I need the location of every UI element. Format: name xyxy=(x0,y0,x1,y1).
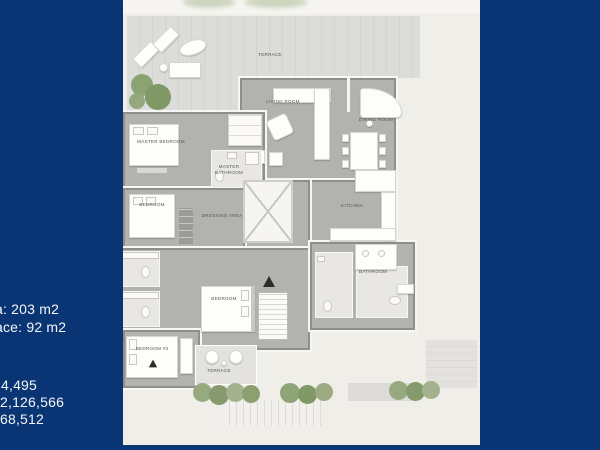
chair-icon xyxy=(342,160,349,168)
sink-counter-icon xyxy=(123,292,159,299)
bed-bench-icon xyxy=(137,168,167,173)
floor-plan-image: TERRACE LIVING ROOM DINING ROOM KITCHEN … xyxy=(123,0,480,445)
sink-counter-icon xyxy=(123,252,159,259)
shower-icon xyxy=(245,152,259,165)
terrace-text: ace: 92 m2 xyxy=(0,319,66,335)
wardrobe-icon xyxy=(180,338,193,374)
pillow-icon xyxy=(241,306,249,317)
sofa-icon xyxy=(314,88,330,160)
kitchen-counter xyxy=(330,228,396,241)
label-bathroom-right: BATHROOM xyxy=(359,269,387,275)
label-dining-room: DINING ROOM xyxy=(359,117,393,123)
chair-icon xyxy=(379,134,386,142)
label-bedroom-lower: BEDROOM #3 xyxy=(136,346,169,352)
label-master-bedroom: MASTER BEDROOM xyxy=(137,139,185,145)
sink-icon xyxy=(362,250,369,257)
bush-icon xyxy=(422,381,440,399)
chair-icon xyxy=(379,160,386,168)
staircase xyxy=(258,292,288,340)
side-table-icon xyxy=(159,63,168,72)
label-terrace-main: TERRACE xyxy=(258,52,282,58)
pillow-icon xyxy=(241,290,249,301)
patio-chair-icon xyxy=(205,350,219,364)
label-kitchen: KITCHEN xyxy=(341,203,363,209)
kitchen-counter xyxy=(355,170,396,192)
toilet-icon xyxy=(389,296,401,305)
chair-icon xyxy=(342,147,349,155)
bush-icon xyxy=(242,385,260,403)
tree-icon xyxy=(145,84,171,110)
figure-line: 68,512 xyxy=(0,411,44,427)
sink-icon xyxy=(317,256,325,262)
pillow-icon xyxy=(147,127,158,135)
wardrobe-icon xyxy=(179,208,193,244)
vanity-counter xyxy=(355,244,397,270)
chair-icon xyxy=(379,147,386,155)
toilet-icon xyxy=(141,266,150,278)
bush-icon xyxy=(280,383,300,403)
pillow-icon xyxy=(129,354,137,365)
figure-line: 2,126,566 xyxy=(0,394,64,410)
sink-icon xyxy=(227,152,237,159)
shelf-icon xyxy=(397,284,414,294)
label-bedroom-middle: BEDROOM xyxy=(211,296,237,302)
tree-icon xyxy=(129,93,145,109)
dining-table-icon xyxy=(350,132,378,170)
ottoman-icon xyxy=(269,152,283,166)
label-dressing-area: DRESSING AREA xyxy=(202,213,243,219)
pillow-icon xyxy=(133,127,144,135)
area-text: a: 203 m2 xyxy=(0,301,59,317)
bush-icon xyxy=(298,385,317,404)
direction-arrow-icon xyxy=(149,360,157,368)
patio-chair-icon xyxy=(229,350,243,364)
label-terrace-small: TERRACE xyxy=(207,368,231,374)
entrance-arrow-icon xyxy=(263,276,275,287)
chair-icon xyxy=(342,134,349,142)
label-master-bathroom: MASTER BATHROOM xyxy=(212,164,246,176)
slide-background: a: 203 m2 ace: 92 m2 4,495 2,126,566 68,… xyxy=(0,0,600,450)
toilet-icon xyxy=(323,300,332,312)
void-shaft xyxy=(243,180,293,243)
wall-opening xyxy=(347,78,350,112)
bush-icon xyxy=(315,383,333,401)
label-living-room: LIVING ROOM xyxy=(266,99,299,105)
sink-icon xyxy=(378,250,385,257)
wardrobe-icon xyxy=(228,114,262,146)
patio-table-icon xyxy=(221,360,227,366)
label-bedroom-upper: BEDROOM xyxy=(139,202,165,208)
outdoor-sofa-icon xyxy=(169,62,201,78)
figure-line: 4,495 xyxy=(1,377,37,393)
toilet-icon xyxy=(141,306,150,318)
